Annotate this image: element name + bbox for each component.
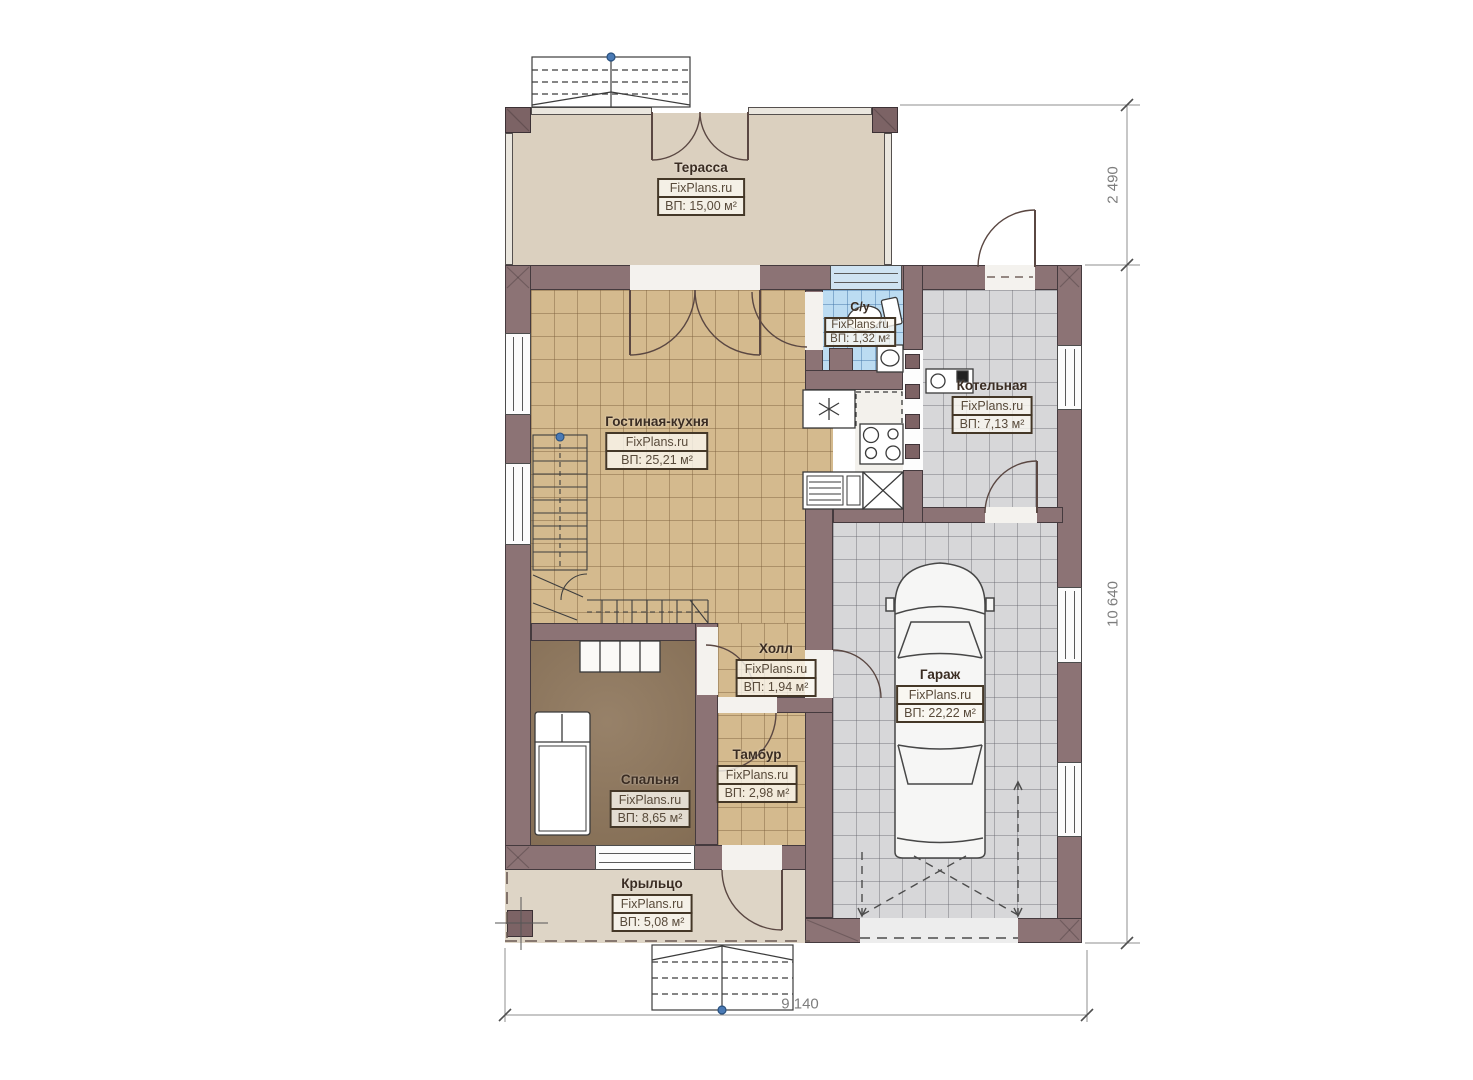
room-title: С/у (824, 300, 896, 314)
watermark: FixPlans.ru (605, 432, 708, 452)
window-bathroom-north (830, 265, 902, 290)
room-title: Гостиная-кухня (605, 414, 708, 429)
watermark: FixPlans.ru (657, 178, 745, 198)
hall-vestibule-opening (718, 697, 777, 713)
room-title: Гараж (896, 667, 984, 682)
window-garage-east-1 (1057, 587, 1082, 663)
room-area: ВП: 25,21 м² (605, 450, 708, 470)
room-title: Холл (736, 641, 817, 656)
watermark: FixPlans.ru (952, 396, 1033, 416)
room-label-living-kitchen: Гостиная-кухня FixPlans.ru ВП: 25,21 м² (605, 414, 708, 470)
room-area: ВП: 1,94 м² (736, 677, 817, 697)
watermark: FixPlans.ru (896, 685, 984, 705)
room-label-hall: Холл FixPlans.ru ВП: 1,94 м² (736, 641, 817, 697)
dimension-right-upper: 2 490 (1105, 166, 1122, 204)
window-boiler-east (1057, 345, 1082, 410)
kitchen-counter-area (855, 390, 903, 510)
watermark: FixPlans.ru (824, 317, 896, 333)
room-label-terrace: Терасса FixPlans.ru ВП: 15,00 м² (657, 160, 745, 216)
room-label-boiler-room: Котельная FixPlans.ru ВП: 7,13 м² (952, 378, 1033, 434)
room-label-vestibule: Тамбур FixPlans.ru ВП: 2,98 м² (717, 747, 798, 803)
floor-plan-canvas: Терасса FixPlans.ru ВП: 15,00 м² Гостина… (0, 0, 1473, 1080)
watermark: FixPlans.ru (717, 765, 798, 785)
vestibule-porch-opening (722, 845, 782, 870)
window-bedroom-south (595, 845, 695, 870)
room-area: ВП: 7,13 м² (952, 414, 1033, 434)
terrace-railing-north-left (531, 107, 652, 115)
room-label-garage: Гараж FixPlans.ru ВП: 22,22 м² (896, 667, 984, 723)
room-title: Терасса (657, 160, 745, 175)
french-door-opening (630, 265, 760, 290)
room-title: Спальня (610, 772, 691, 787)
room-area: ВП: 22,22 м² (896, 703, 984, 723)
flue-3 (905, 414, 920, 429)
exterior-stairs-bottom (652, 945, 793, 1014)
porch-column (507, 910, 533, 937)
boiler-garage-opening (985, 507, 1037, 523)
garage-gate-opening (860, 918, 1018, 943)
wall-kitchen-boiler (903, 470, 923, 523)
terrace-railing-east (884, 133, 892, 265)
bedroom-door-opening (697, 627, 718, 695)
room-label-porch: Крыльцо FixPlans.ru ВП: 5,08 м² (612, 876, 693, 932)
wall-bathroom-boiler (903, 265, 923, 350)
wall-living-bedroom (531, 623, 718, 641)
exterior-stairs-top (532, 53, 690, 107)
terrace-railing-west (505, 133, 513, 265)
terrace-post-nw (505, 107, 531, 133)
room-area: ВП: 2,98 м² (717, 783, 798, 803)
boiler-entry-opening (985, 265, 1035, 290)
flue-4 (905, 444, 920, 459)
room-label-bathroom: С/у FixPlans.ru ВП: 1,32 м² (824, 300, 896, 347)
terrace-railing-north-right (748, 107, 872, 115)
dimension-bottom: 9 140 (781, 996, 819, 1013)
room-area: ВП: 1,32 м² (824, 331, 896, 347)
room-title: Котельная (952, 378, 1033, 393)
room-area: ВП: 8,65 м² (610, 808, 691, 828)
room-title: Крыльцо (612, 876, 693, 891)
window-living-west-1 (505, 333, 531, 415)
flue-2 (905, 384, 920, 399)
room-area: ВП: 5,08 м² (612, 912, 693, 932)
room-title: Тамбур (717, 747, 798, 762)
dimension-right-lower: 10 640 (1105, 581, 1122, 627)
flue-1 (905, 354, 920, 369)
wall-bathroom-south (805, 370, 903, 390)
watermark: FixPlans.ru (610, 790, 691, 810)
room-label-bedroom: Спальня FixPlans.ru ВП: 8,65 м² (610, 772, 691, 828)
window-garage-east-2 (1057, 762, 1082, 837)
watermark: FixPlans.ru (736, 659, 817, 679)
window-living-west-2 (505, 463, 531, 545)
room-area: ВП: 15,00 м² (657, 196, 745, 216)
terrace-post-ne (872, 107, 898, 133)
watermark: FixPlans.ru (612, 894, 693, 914)
bathroom-door-opening (805, 292, 823, 350)
